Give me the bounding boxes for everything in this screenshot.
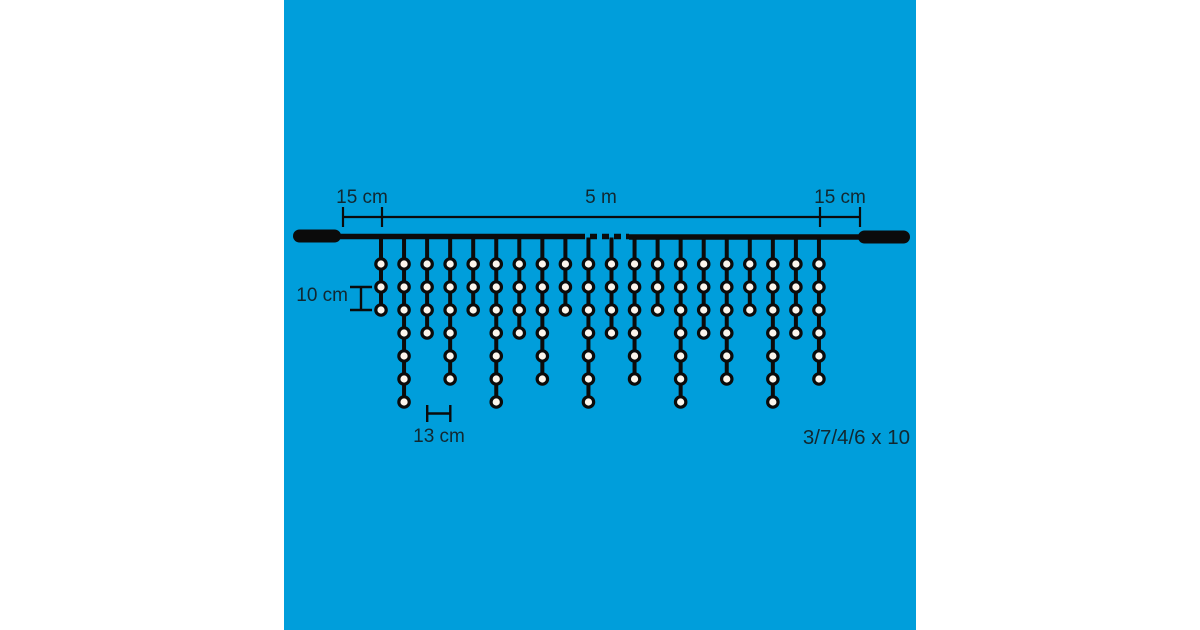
- light-strand: [559, 238, 573, 317]
- bulb: [562, 306, 569, 313]
- bulb: [377, 306, 384, 313]
- bulb: [815, 352, 822, 359]
- bulb: [539, 283, 546, 290]
- bulb: [585, 398, 592, 405]
- bulb: [677, 352, 684, 359]
- bulb: [608, 283, 615, 290]
- bulb: [400, 306, 407, 313]
- bulb: [585, 352, 592, 359]
- bulb: [585, 260, 592, 267]
- bulb: [516, 260, 523, 267]
- bulb: [539, 306, 546, 313]
- bulb: [424, 260, 431, 267]
- bulb: [631, 306, 638, 313]
- bulb: [470, 283, 477, 290]
- drop-spacing-marker: [427, 405, 450, 422]
- bulb: [447, 329, 454, 336]
- light-strand: [420, 238, 434, 340]
- label-drop-spacing: 13 cm: [413, 426, 465, 447]
- label-lead-left: 15 cm: [336, 187, 388, 208]
- bulb: [608, 260, 615, 267]
- bulb: [400, 398, 407, 405]
- bulb: [792, 283, 799, 290]
- bulb: [585, 306, 592, 313]
- bulb: [723, 283, 730, 290]
- light-strand: [443, 238, 457, 386]
- bulb: [400, 283, 407, 290]
- bulb: [769, 306, 776, 313]
- bulb: [769, 352, 776, 359]
- bulb: [746, 260, 753, 267]
- light-strand: [674, 238, 688, 409]
- bulb: [608, 329, 615, 336]
- bulb-spacing-marker: [350, 287, 372, 310]
- light-strand: [536, 238, 550, 386]
- bulb: [377, 283, 384, 290]
- bulb: [631, 283, 638, 290]
- light-strand: [720, 238, 734, 386]
- screenshot-root: 15 cm 5 m 15 cm 10 cm: [0, 0, 1200, 630]
- light-strand: [697, 238, 711, 340]
- light-strand: [766, 238, 780, 409]
- bulb: [400, 352, 407, 359]
- bulb: [539, 352, 546, 359]
- bulb: [447, 260, 454, 267]
- bulb: [677, 375, 684, 382]
- bulb: [654, 306, 661, 313]
- label-lead-right: 15 cm: [814, 187, 866, 208]
- bulb: [723, 260, 730, 267]
- bulb: [539, 329, 546, 336]
- bulb: [470, 260, 477, 267]
- light-strand: [789, 238, 803, 340]
- light-strands: [374, 238, 826, 409]
- bulb: [792, 329, 799, 336]
- bulb: [447, 352, 454, 359]
- bulb: [700, 329, 707, 336]
- bulb: [677, 283, 684, 290]
- bulb: [677, 306, 684, 313]
- diagram-panel: 15 cm 5 m 15 cm 10 cm: [284, 0, 916, 630]
- bulb: [815, 329, 822, 336]
- bulb: [539, 375, 546, 382]
- bulb: [516, 283, 523, 290]
- top-dimension-lines: [343, 207, 860, 227]
- bulb: [769, 329, 776, 336]
- bulb: [539, 260, 546, 267]
- bulb: [631, 375, 638, 382]
- bulb: [493, 283, 500, 290]
- light-strand: [374, 238, 388, 317]
- bulb: [377, 260, 384, 267]
- bulb: [447, 375, 454, 382]
- bulb: [585, 329, 592, 336]
- bulb: [400, 375, 407, 382]
- bulb: [723, 329, 730, 336]
- bulb: [746, 283, 753, 290]
- bulb: [769, 398, 776, 405]
- bulb: [746, 306, 753, 313]
- bulb: [700, 260, 707, 267]
- light-strand: [743, 238, 757, 317]
- bulb: [400, 329, 407, 336]
- label-span: 5 m: [585, 187, 617, 208]
- bulb: [677, 398, 684, 405]
- bulb: [769, 283, 776, 290]
- bulb: [493, 375, 500, 382]
- bulb: [447, 306, 454, 313]
- bulb: [769, 375, 776, 382]
- bulb: [723, 375, 730, 382]
- bulb: [400, 260, 407, 267]
- bulb: [815, 375, 822, 382]
- bulb: [493, 329, 500, 336]
- bulb: [516, 329, 523, 336]
- light-strand: [489, 238, 503, 409]
- bulb: [631, 352, 638, 359]
- icicle-lights-diagram: 15 cm 5 m 15 cm 10 cm: [284, 0, 916, 630]
- bulb: [608, 306, 615, 313]
- light-strand: [466, 238, 480, 317]
- bulb: [470, 306, 477, 313]
- bulb: [631, 329, 638, 336]
- cable-end-cap-right: [858, 231, 910, 244]
- bulb: [815, 306, 822, 313]
- bulb: [815, 260, 822, 267]
- bulb: [516, 306, 523, 313]
- bulb: [493, 398, 500, 405]
- bulb: [585, 375, 592, 382]
- light-strand: [582, 238, 596, 409]
- cable-end-cap-left: [293, 230, 341, 243]
- light-strand: [812, 238, 826, 386]
- bulb: [424, 283, 431, 290]
- bulb: [792, 260, 799, 267]
- bulb: [723, 306, 730, 313]
- bulb: [677, 329, 684, 336]
- bulb: [585, 283, 592, 290]
- light-strand: [513, 238, 527, 340]
- bulb: [493, 306, 500, 313]
- bulb: [631, 260, 638, 267]
- bulb: [654, 283, 661, 290]
- bulb: [792, 306, 799, 313]
- label-pattern: 3/7/4/6 x 10: [803, 426, 910, 449]
- label-bulb-spacing: 10 cm: [296, 285, 348, 306]
- bulb: [493, 260, 500, 267]
- bulb: [562, 260, 569, 267]
- bulb: [562, 283, 569, 290]
- bulb: [700, 283, 707, 290]
- bulb: [769, 260, 776, 267]
- bulb: [815, 283, 822, 290]
- bulb: [677, 260, 684, 267]
- bulb: [424, 306, 431, 313]
- light-strand: [628, 238, 642, 386]
- bulb: [447, 283, 454, 290]
- light-strand: [397, 238, 411, 409]
- bulb: [723, 352, 730, 359]
- light-strand: [605, 238, 619, 340]
- light-strand: [651, 238, 665, 317]
- bulb: [493, 352, 500, 359]
- bulb: [654, 260, 661, 267]
- bulb: [424, 329, 431, 336]
- bulb: [700, 306, 707, 313]
